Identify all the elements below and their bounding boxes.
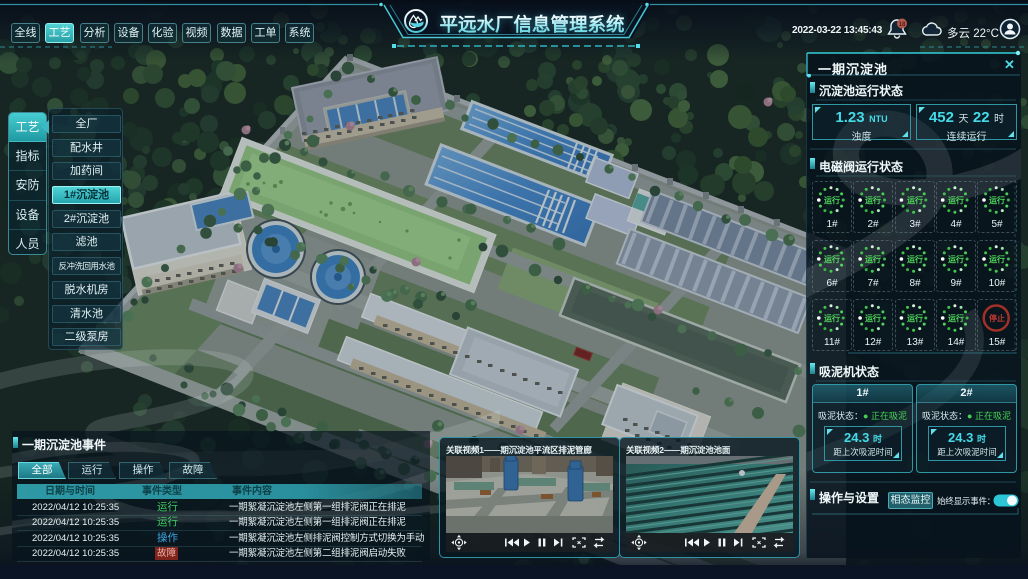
svg-text:18: 18 bbox=[899, 22, 906, 28]
